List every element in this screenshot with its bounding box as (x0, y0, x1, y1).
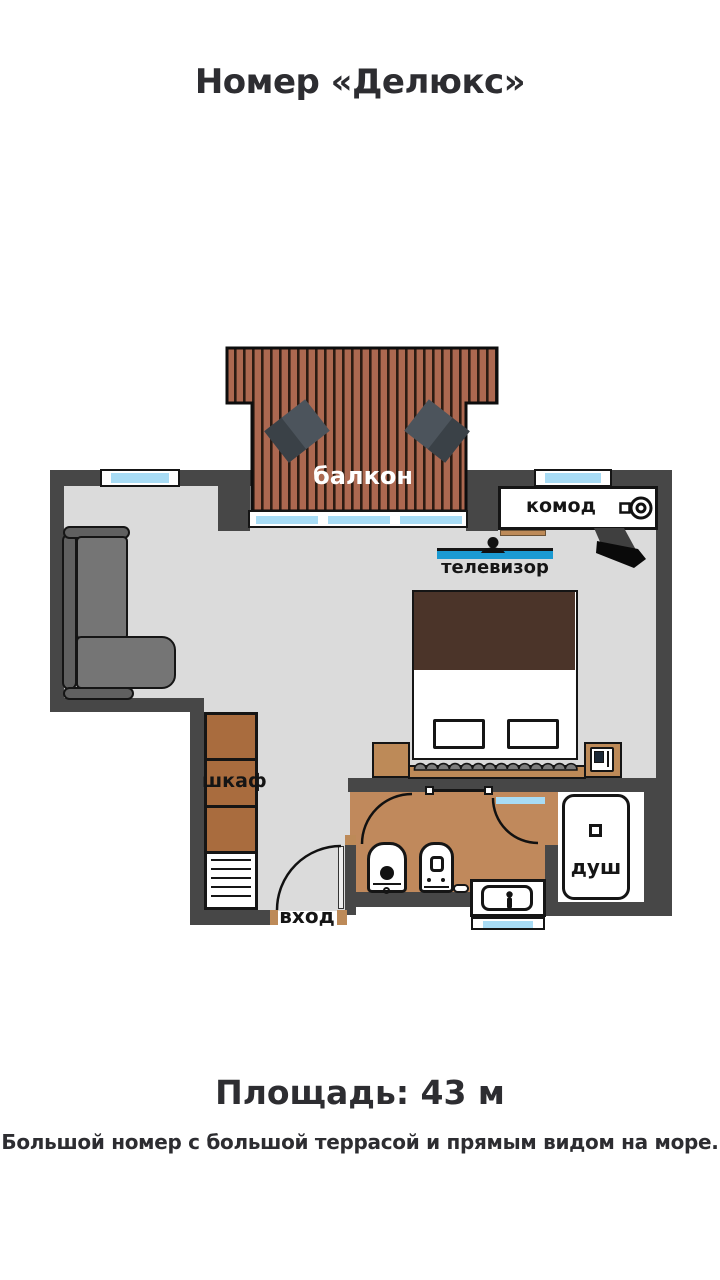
lounger-icon (404, 399, 470, 463)
sofa-seat (76, 536, 128, 640)
entrance-door-leaf (338, 846, 344, 909)
wall-segment (190, 910, 278, 925)
door-glass (328, 516, 390, 524)
bidet-dot (427, 878, 431, 882)
wall-segment (218, 470, 250, 531)
shower-label: душ (560, 855, 632, 879)
toilet-line (373, 883, 401, 885)
tv-label: телевизор (432, 557, 558, 578)
phone-screen (594, 751, 604, 763)
nightstand (584, 742, 622, 778)
wall-segment (644, 790, 672, 916)
door-glass (400, 516, 462, 524)
pillow (507, 719, 559, 749)
wardrobe-shelves (207, 854, 255, 907)
toilet-dot (380, 866, 394, 880)
lounger-icon (264, 399, 330, 463)
glass-partition (496, 797, 545, 804)
sofa-chaise (76, 636, 176, 689)
sofa-back (62, 533, 77, 690)
balcony-label: балкон (297, 462, 429, 490)
floor-plan: балкон комод телевизор шкаф вход душ (0, 0, 720, 1060)
bidet-symbol (419, 842, 454, 893)
shower-drain-icon (589, 824, 602, 837)
toilet-ring (383, 887, 390, 894)
window (534, 469, 612, 487)
headboard (408, 765, 586, 779)
wall-segment (50, 698, 203, 712)
bidet-dot (441, 878, 445, 882)
wardrobe-divider (207, 758, 255, 761)
wardrobe (204, 712, 258, 910)
wardrobe-label: шкаф (202, 770, 260, 792)
bidet-line (424, 886, 449, 888)
description-text: Большой номер с большой террасой и прямы… (0, 1130, 720, 1154)
towel-rail-bar (433, 789, 486, 792)
area-text: Площадь: 43 м (0, 1073, 720, 1112)
bidet-hole (430, 856, 444, 872)
window-glass (545, 473, 601, 483)
sink-shelf-glass (483, 921, 533, 928)
entrance-label: вход (274, 904, 340, 928)
door-jamb (345, 835, 356, 845)
balcony-sliding-door (248, 510, 468, 528)
wall-segment (190, 698, 204, 925)
page: Номер «Делюкс» (0, 0, 720, 1280)
shelf-lines (211, 859, 251, 904)
sink-basin (481, 885, 533, 911)
wall-segment (656, 470, 672, 792)
bed-blanket (414, 592, 575, 670)
window (100, 469, 180, 487)
toilet-symbol (367, 842, 407, 893)
wall-segment (348, 778, 672, 792)
dresser-label: комод (500, 495, 622, 517)
shower-box (562, 794, 630, 900)
dresser-shelf (500, 530, 546, 536)
nightstand (372, 742, 410, 778)
sink-vanity (470, 879, 546, 917)
sink-shelf (471, 917, 545, 930)
soap-dish (453, 884, 469, 893)
wardrobe-divider (207, 805, 255, 808)
phone-icon (590, 747, 614, 772)
door-glass (256, 516, 318, 524)
wall-segment (352, 892, 474, 907)
window-glass (111, 473, 169, 483)
pillow (433, 719, 485, 749)
phone-line (607, 751, 609, 767)
